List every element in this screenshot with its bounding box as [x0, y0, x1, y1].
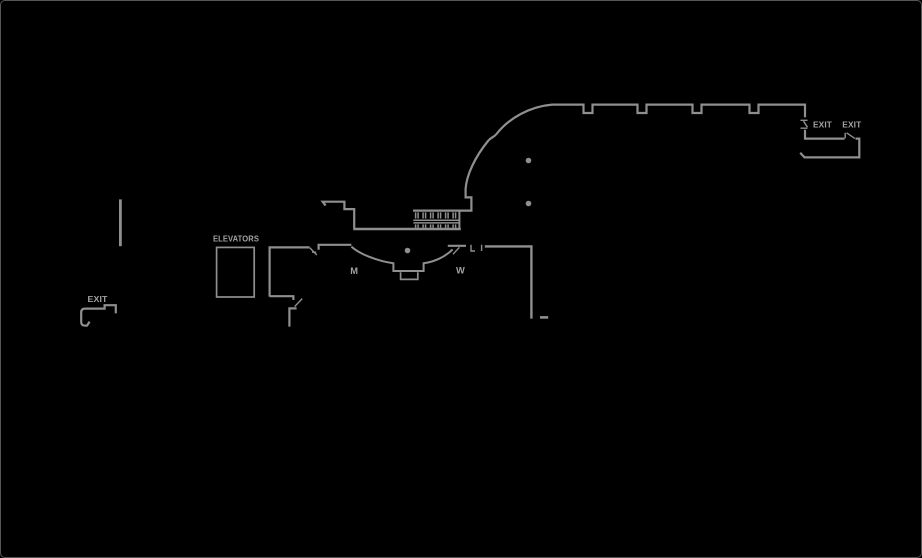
staircase	[413, 212, 459, 229]
elevators-label: ELEVATORS	[213, 234, 259, 244]
elevator-shaft	[217, 247, 255, 297]
wall-steps-left	[323, 202, 355, 228]
column-dot-icon	[405, 248, 411, 254]
lounge-curve	[351, 247, 452, 280]
floor-plan-screenshot: ELEVATORS EXIT EXIT EXIT M W	[0, 0, 922, 558]
door-swing-men-icon	[310, 248, 317, 255]
lobby-bottom-wall	[270, 296, 294, 300]
door-frame-top-right-icon	[801, 120, 808, 128]
lobby-left-top-wall	[270, 247, 310, 296]
lobby-bottom-stub	[289, 308, 296, 326]
door-swing-right-corridor-icon	[845, 133, 855, 139]
restroom-men-label: M	[350, 266, 358, 276]
wall-right-corridor	[800, 104, 859, 158]
stairs-landing-lines	[413, 220, 459, 223]
exit-left-label: EXIT	[88, 294, 108, 304]
floor-plan-canvas: ELEVATORS EXIT EXIT EXIT M W	[1, 1, 922, 558]
column-dot-icon	[526, 158, 532, 164]
lounge-arc-and-bay	[351, 247, 452, 271]
wall-men-entry	[319, 245, 352, 250]
women-entrance	[448, 245, 548, 319]
door-frame-women-icon	[471, 245, 482, 251]
restroom-women-label: W	[456, 266, 465, 276]
wall-right-wing	[485, 246, 532, 318]
bay-inner-step	[401, 272, 418, 279]
exit-top-right-label-2: EXIT	[842, 120, 861, 130]
elevator-lobby	[270, 245, 352, 327]
door-swing-lobby-bottom-icon	[295, 299, 303, 307]
wall-top-and-curve	[413, 105, 805, 211]
column-dot-icon	[526, 201, 532, 207]
exit-top-right-label-1: EXIT	[813, 120, 832, 130]
exit-left-vestibule	[81, 305, 116, 325]
door-swing-women-icon	[453, 247, 459, 254]
